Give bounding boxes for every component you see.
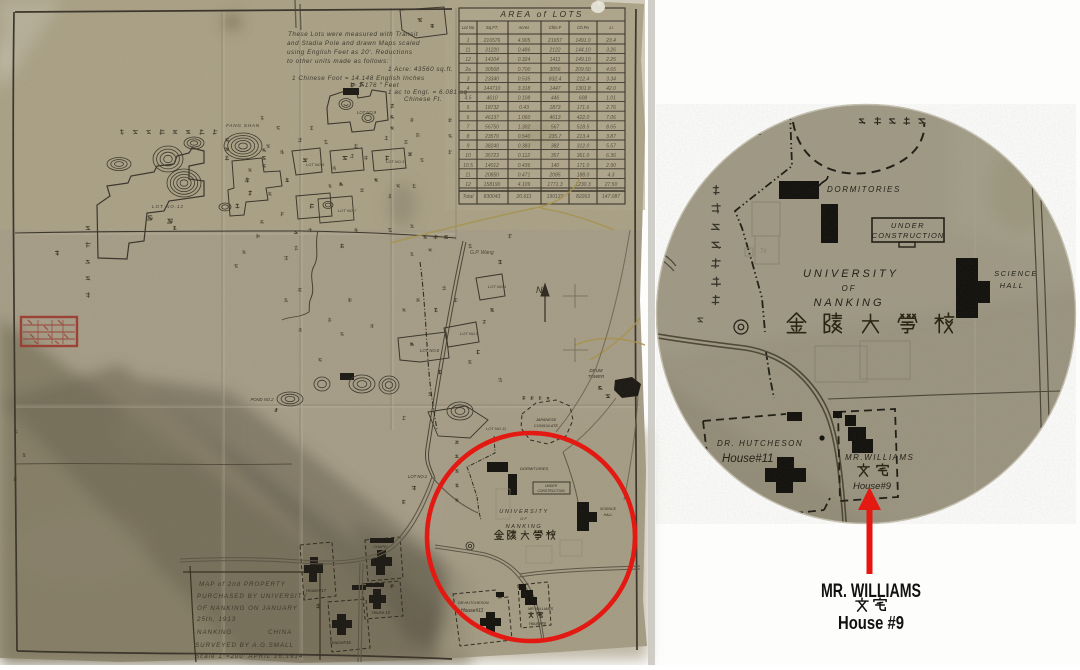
svg-text:House #9: House #9	[838, 613, 904, 633]
svg-text:MR. WILLIAMS: MR. WILLIAMS	[821, 581, 921, 602]
